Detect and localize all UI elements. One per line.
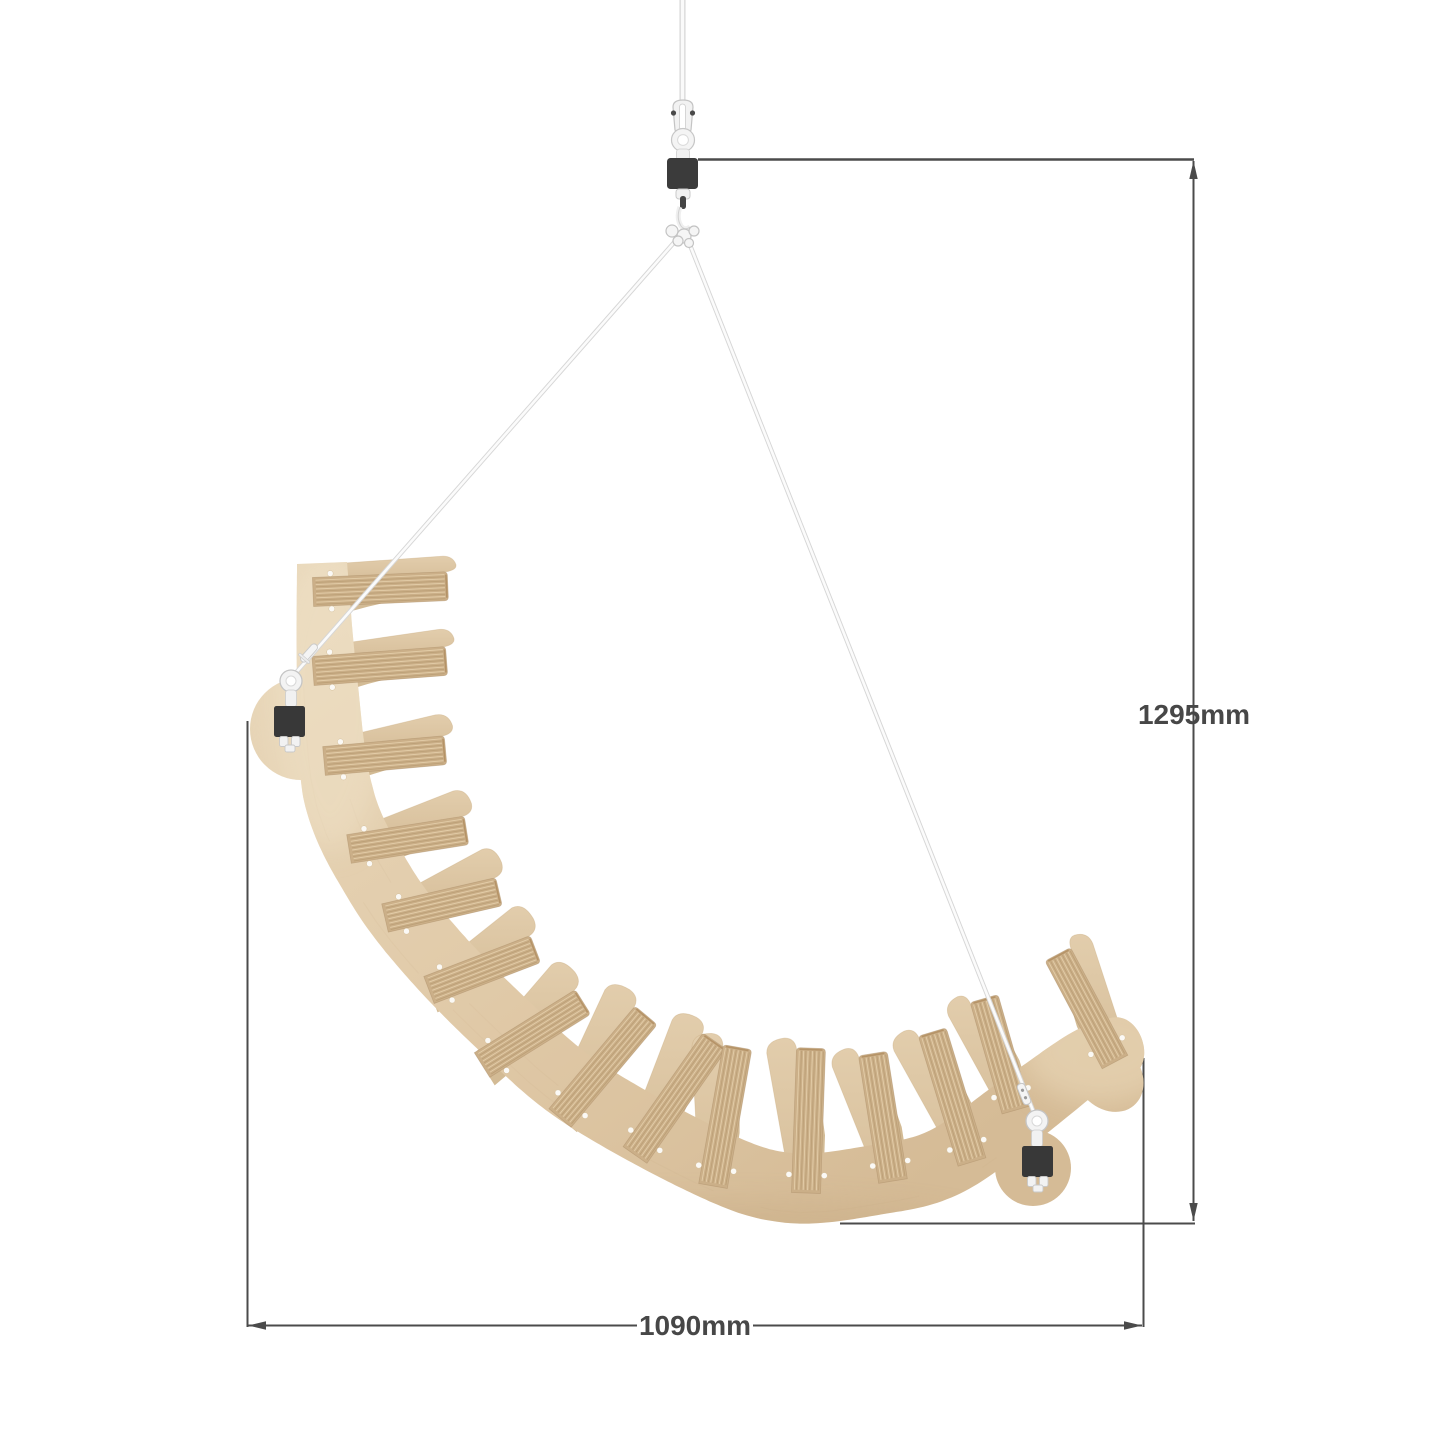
svg-text:1295mm: 1295mm [1138, 699, 1250, 730]
svg-text:1090mm: 1090mm [639, 1310, 751, 1341]
